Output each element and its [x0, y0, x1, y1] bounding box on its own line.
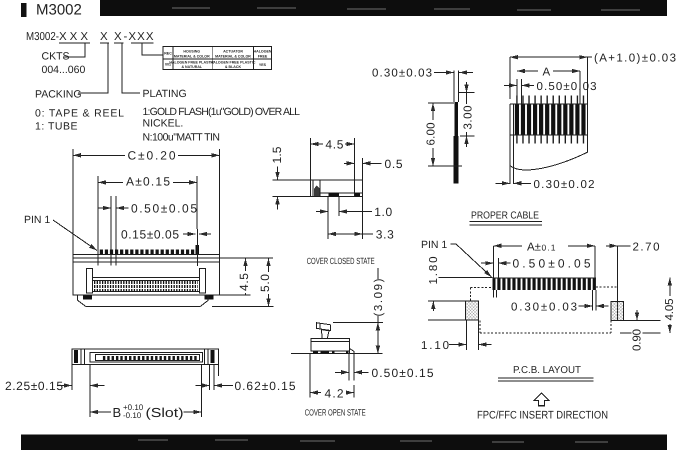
svg-text:HALOGEN FREE PLASTIC: HALOGEN FREE PLASTIC [211, 61, 256, 65]
svg-text:MATERIAL & COLOR: MATERIAL & COLOR [215, 55, 251, 59]
svg-text:3.3: 3.3 [376, 228, 394, 242]
svg-text:4.05: 4.05 [664, 299, 676, 321]
svg-text:M3002: M3002 [36, 2, 82, 19]
svg-text:1.80: 1.80 [428, 257, 440, 285]
svg-text:FPC/FFC INSERT DIRECTION: FPC/FFC INSERT DIRECTION [477, 410, 608, 422]
svg-text:HALOGEN: HALOGEN [254, 50, 272, 54]
svg-text:NICKEL.: NICKEL. [143, 118, 184, 130]
svg-text:0.30±0.03: 0.30±0.03 [511, 301, 577, 313]
svg-text:4.5: 4.5 [237, 273, 251, 291]
svg-text:(A+1.0)±0.03: (A+1.0)±0.03 [594, 53, 676, 65]
svg-text:0.15±0.05: 0.15±0.05 [121, 227, 179, 241]
svg-text:4.5: 4.5 [325, 137, 343, 151]
svg-text:REC: REC [164, 52, 172, 56]
svg-text:-0.10: -0.10 [123, 411, 142, 420]
svg-text:1.5: 1.5 [270, 146, 284, 163]
svg-text:0.62±0.15: 0.62±0.15 [235, 379, 296, 393]
svg-text:0.1: 0.1 [542, 242, 556, 252]
svg-text:CKTS: CKTS [42, 51, 70, 63]
svg-text:B: B [113, 405, 122, 420]
svg-text:C±0.20: C±0.20 [128, 149, 176, 163]
svg-text:PLATING: PLATING [143, 88, 187, 100]
svg-text:5.0: 5.0 [258, 274, 272, 292]
svg-text:1:GOLD FLASH(1u"GOLD) OVER ALL: 1:GOLD FLASH(1u"GOLD) OVER ALL [143, 106, 301, 118]
svg-text:PACKING: PACKING [35, 89, 81, 101]
svg-text:A±0.15: A±0.15 [126, 175, 170, 189]
svg-text:0.5: 0.5 [385, 157, 403, 171]
svg-text:PIN 1: PIN 1 [421, 239, 447, 251]
svg-text:YES: YES [259, 63, 267, 67]
svg-text:1.0: 1.0 [374, 205, 392, 219]
svg-text:FREE: FREE [258, 55, 268, 59]
svg-text:2.70: 2.70 [633, 241, 660, 253]
svg-text:A±: A± [527, 241, 541, 253]
svg-text:1: TUBE: 1: TUBE [35, 121, 78, 133]
svg-text:-XXX: -XXX [124, 31, 154, 43]
svg-text:A: A [543, 66, 551, 78]
svg-text:0: TAPE & REEL: 0: TAPE & REEL [35, 108, 124, 120]
svg-text:(3.09): (3.09) [373, 278, 385, 316]
svg-text:0.50±0.05: 0.50±0.05 [131, 201, 197, 215]
svg-text:6.00: 6.00 [425, 123, 437, 146]
svg-text:PIN 1: PIN 1 [24, 214, 50, 226]
svg-text:3.00: 3.00 [463, 106, 475, 130]
svg-text:0.30±0.03: 0.30±0.03 [372, 68, 432, 80]
svg-text:COVER OPEN STATE: COVER OPEN STATE [305, 408, 366, 418]
svg-text:N:100u"MATT TIN: N:100u"MATT TIN [143, 132, 221, 144]
svg-text:PROPER CABLE: PROPER CABLE [471, 211, 539, 222]
svg-text:X: X [114, 31, 122, 43]
svg-text:MATERIAL & COLOR: MATERIAL & COLOR [174, 55, 210, 59]
svg-text:P.C.B. LAYOUT: P.C.B. LAYOUT [513, 365, 581, 376]
svg-text:1.10: 1.10 [421, 340, 449, 352]
svg-text:0.30±0.02: 0.30±0.02 [534, 179, 595, 191]
svg-text:& NATURAL: & NATURAL [181, 65, 202, 69]
svg-text:HOUSING: HOUSING [183, 50, 200, 54]
svg-text:M3002-: M3002- [26, 31, 59, 43]
svg-text:2.25±0.15: 2.25±0.15 [5, 379, 63, 393]
svg-text:0.90: 0.90 [632, 329, 644, 351]
svg-text:& BLACK: & BLACK [225, 65, 242, 69]
svg-text:HALOGEN FREE PLASTIC: HALOGEN FREE PLASTIC [169, 61, 214, 65]
svg-text:0.50±0.15: 0.50±0.15 [372, 366, 434, 380]
svg-text:XXX: XXX [59, 31, 88, 43]
svg-text:4.2: 4.2 [325, 386, 344, 400]
svg-text:COVER CLOSED STATE: COVER CLOSED STATE [307, 256, 375, 266]
svg-text:0.50±0.05: 0.50±0.05 [513, 257, 591, 271]
svg-text:004...060: 004...060 [42, 64, 86, 76]
svg-text:ACTUATOR: ACTUATOR [223, 50, 243, 54]
svg-text:X: X [100, 31, 108, 43]
svg-text:(Slot): (Slot) [146, 405, 184, 420]
